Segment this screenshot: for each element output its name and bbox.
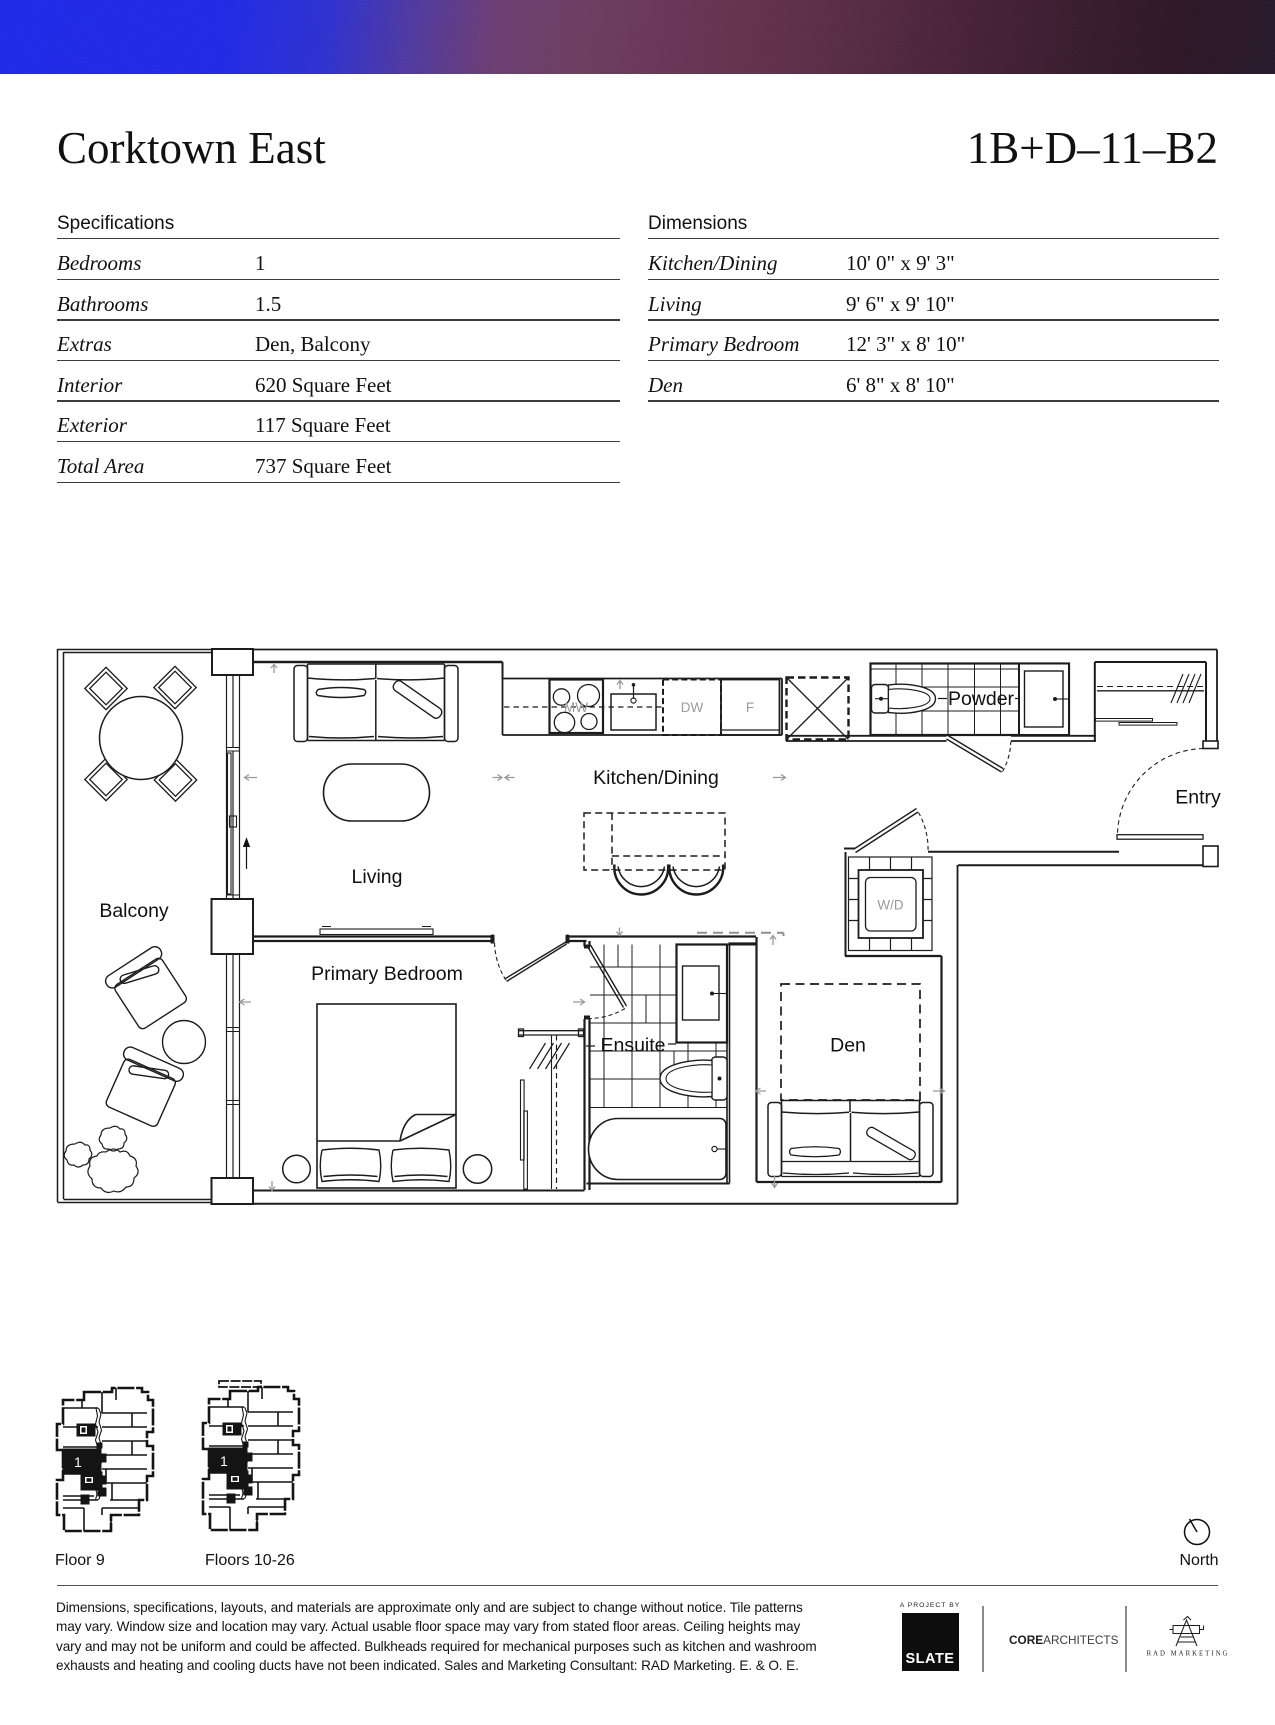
svg-text:North: North bbox=[1179, 1552, 1218, 1569]
svg-text:Entry: Entry bbox=[1175, 787, 1221, 809]
svg-text:Kitchen/Dining: Kitchen/Dining bbox=[593, 767, 719, 789]
svg-text:Powder: Powder bbox=[948, 688, 1015, 710]
svg-text:Primary Bedroom: Primary Bedroom bbox=[311, 963, 463, 985]
svg-text:Balcony: Balcony bbox=[99, 900, 169, 922]
svg-text:Floor 9: Floor 9 bbox=[55, 1552, 105, 1569]
svg-text:W/D: W/D bbox=[877, 898, 903, 913]
svg-text:RAD MARKETING: RAD MARKETING bbox=[1147, 1651, 1230, 1658]
svg-text:Floors 10-26: Floors 10-26 bbox=[205, 1552, 295, 1569]
svg-text:MW: MW bbox=[564, 700, 588, 715]
svg-text:Ensuite: Ensuite bbox=[600, 1035, 665, 1057]
svg-text:Living: Living bbox=[352, 866, 403, 888]
svg-text:DW: DW bbox=[681, 700, 704, 715]
svg-text:Den: Den bbox=[830, 1035, 866, 1057]
svg-text:F: F bbox=[746, 700, 754, 715]
